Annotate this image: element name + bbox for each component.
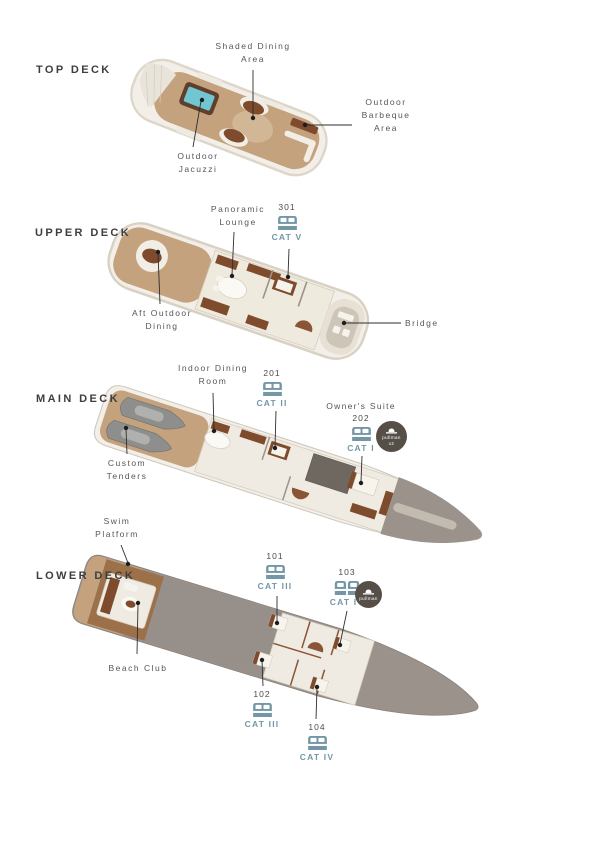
pullman-badge-202: pullman x2 bbox=[376, 421, 407, 452]
callout-custom-tenders: Custom Tenders bbox=[77, 457, 177, 483]
cabin-marker-102: 102 CAT III bbox=[232, 689, 292, 730]
owners-suite-label: Owner's Suite bbox=[311, 401, 411, 412]
deck-title-lower: LOWER DECK bbox=[36, 570, 135, 582]
deck-title-main: MAIN DECK bbox=[36, 393, 120, 405]
pullman-badge-103: pullman bbox=[355, 581, 382, 608]
callout-outdoor-jacuzzi: Outdoor Jacuzzi bbox=[148, 150, 248, 176]
cabin-number: 104 bbox=[308, 722, 325, 733]
callout-aft-outdoor-dining: Aft Outdoor Dining bbox=[102, 307, 222, 333]
yacht-deck-plan: TOP DECK UPPER DECK MAIN DECK LOWER DECK… bbox=[0, 0, 600, 848]
cabin-marker-104: 104 CAT IV bbox=[287, 722, 347, 763]
cabin-category: CAT I bbox=[347, 443, 375, 454]
cabin-category: CAT II bbox=[256, 398, 287, 409]
upper-deck-render bbox=[99, 214, 377, 368]
cabin-number: 101 bbox=[266, 551, 283, 562]
double-bed-icon bbox=[251, 702, 274, 717]
cabin-number: 102 bbox=[253, 689, 270, 700]
callout-outdoor-barbeque-area: Outdoor Barbeque Area bbox=[336, 96, 436, 135]
cabin-number: 103 bbox=[338, 567, 355, 578]
double-bed-icon bbox=[261, 381, 284, 396]
double-bed-icon bbox=[276, 215, 299, 230]
double-bed-icon bbox=[306, 735, 329, 750]
cabin-marker-201: 201 CAT II bbox=[242, 368, 302, 409]
pullman-qty: x2 bbox=[389, 441, 395, 447]
cabin-category: CAT III bbox=[258, 581, 293, 592]
cabin-category: CAT IV bbox=[300, 752, 334, 763]
cabin-number: 201 bbox=[263, 368, 280, 379]
pullman-bed-icon bbox=[362, 588, 375, 596]
deck-plan-graphics bbox=[0, 0, 600, 848]
cabin-marker-101: 101 CAT III bbox=[245, 551, 305, 592]
pullman-label: pullman bbox=[359, 596, 378, 602]
callout-swim-platform: Swim Platform bbox=[67, 515, 167, 541]
deck-title-upper: UPPER DECK bbox=[35, 227, 131, 239]
cabin-category: CAT III bbox=[245, 719, 280, 730]
callout-beach-club: Beach Club bbox=[78, 662, 198, 675]
callout-bridge: Bridge bbox=[405, 317, 439, 330]
cabin-marker-301: 301 CAT V bbox=[257, 202, 317, 243]
cabin-category: CAT V bbox=[272, 232, 303, 243]
double-bed-icon bbox=[264, 564, 287, 579]
deck-title-top: TOP DECK bbox=[36, 64, 112, 76]
cabin-number: 202 bbox=[352, 413, 369, 424]
callout-shaded-dining-area: Shaded Dining Area bbox=[193, 40, 313, 66]
cabin-number: 301 bbox=[278, 202, 295, 213]
pullman-bed-icon bbox=[385, 427, 398, 435]
double-bed-icon bbox=[350, 426, 373, 441]
